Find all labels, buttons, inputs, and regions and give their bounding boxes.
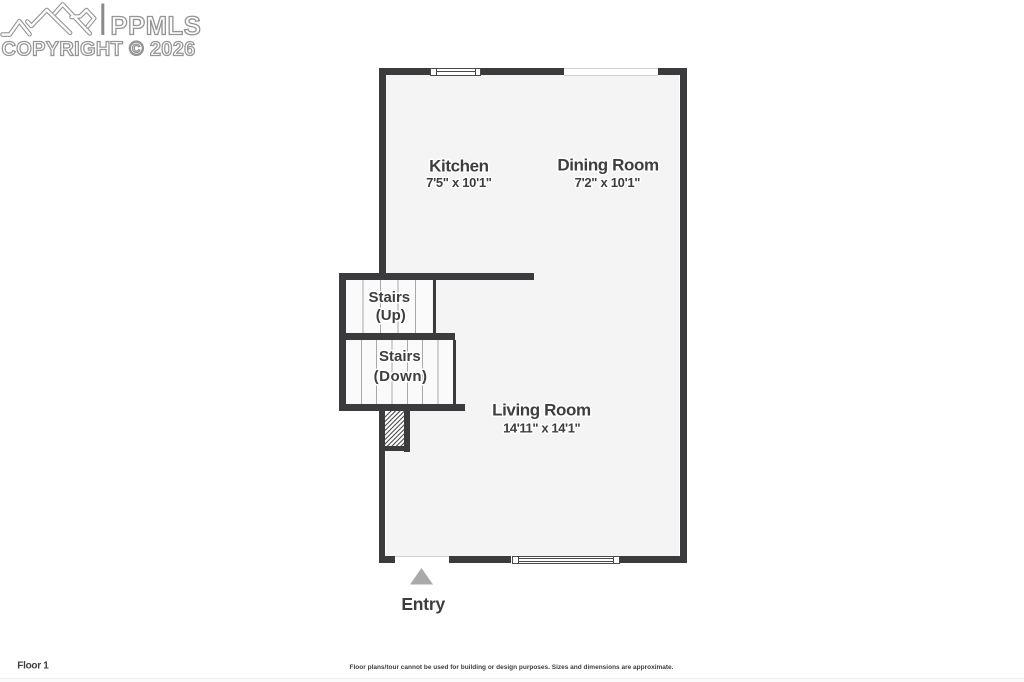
svg-text:Kitchen: Kitchen bbox=[429, 157, 489, 176]
svg-text:7'2" x 10'1": 7'2" x 10'1" bbox=[575, 175, 641, 190]
svg-text:Floor plans/tour cannot be use: Floor plans/tour cannot be used for buil… bbox=[350, 664, 674, 671]
svg-text:Floor 1: Floor 1 bbox=[17, 661, 49, 672]
svg-text:Dining Room: Dining Room bbox=[557, 156, 659, 175]
svg-text:(Down): (Down) bbox=[374, 368, 428, 385]
svg-text:Stairs: Stairs bbox=[379, 348, 421, 365]
svg-text:Entry: Entry bbox=[401, 594, 445, 614]
svg-text:Living Room: Living Room bbox=[492, 400, 591, 419]
svg-text:(Up): (Up) bbox=[376, 307, 406, 324]
svg-text:14'11" x 14'1": 14'11" x 14'1" bbox=[503, 420, 580, 435]
svg-text:Stairs: Stairs bbox=[368, 289, 410, 306]
svg-text:7'5" x 10'1": 7'5" x 10'1" bbox=[426, 175, 492, 190]
